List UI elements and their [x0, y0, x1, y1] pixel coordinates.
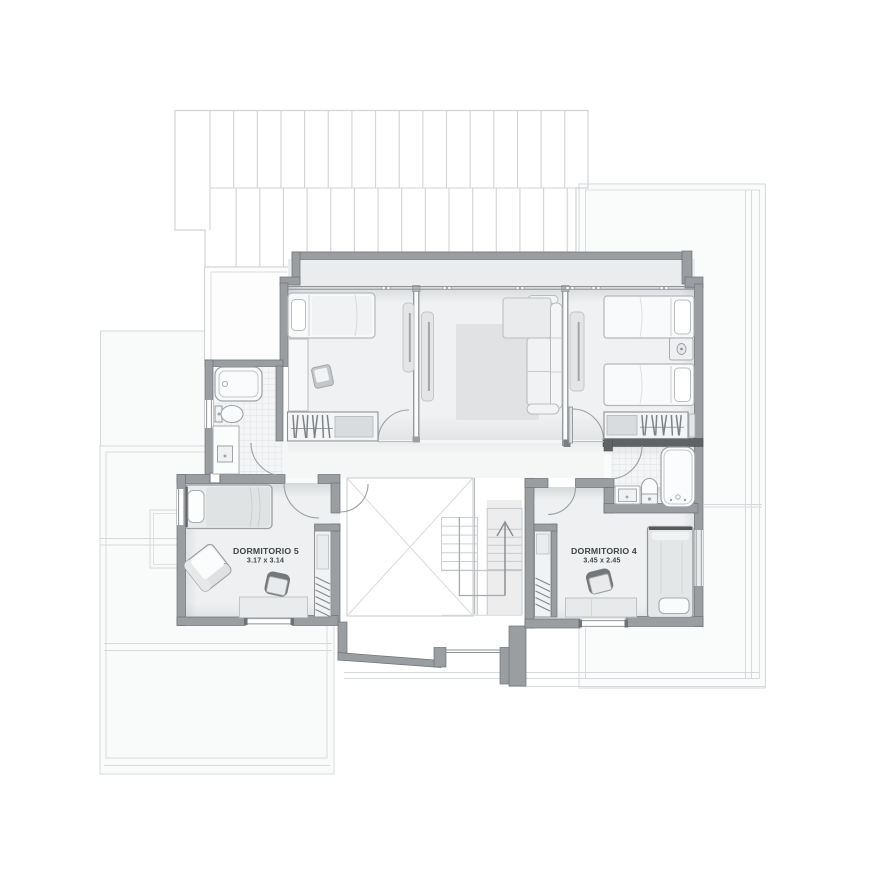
svg-text:3.17 x 3.14: 3.17 x 3.14	[247, 557, 284, 564]
svg-text:DORMITORIO 5: DORMITORIO 5	[233, 546, 299, 556]
svg-text:DORMITORIO 4: DORMITORIO 4	[571, 546, 637, 556]
svg-text:3.45 x 2.45: 3.45 x 2.45	[583, 558, 620, 565]
